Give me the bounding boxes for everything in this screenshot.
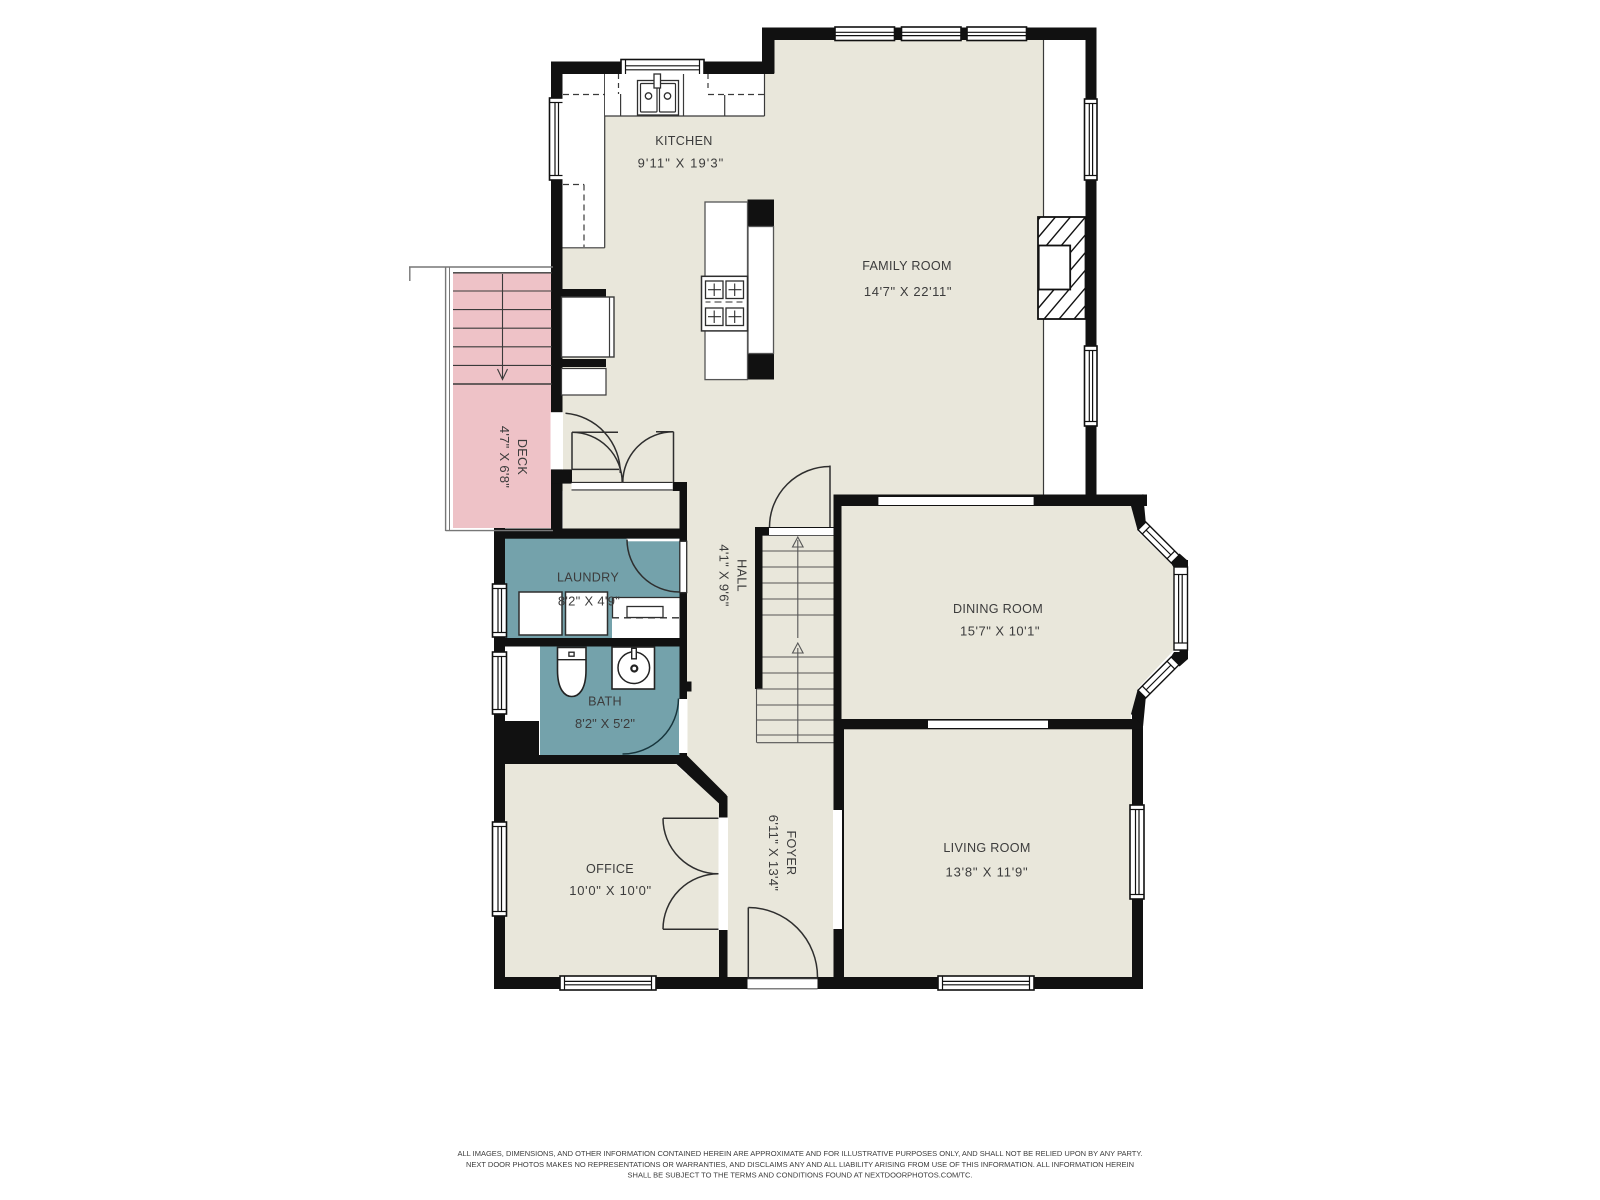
svg-text:ALL IMAGES, DIMENSIONS, AND OT: ALL IMAGES, DIMENSIONS, AND OTHER INFORM…: [457, 1149, 1142, 1158]
svg-text:9'11" X 19'3": 9'11" X 19'3": [638, 156, 725, 171]
svg-text:BATH: BATH: [588, 695, 622, 709]
svg-text:15'7" X 10'1": 15'7" X 10'1": [960, 624, 1040, 639]
svg-text:FOYER: FOYER: [784, 831, 798, 876]
svg-text:KITCHEN: KITCHEN: [655, 134, 712, 148]
svg-text:13'8" X 11'9": 13'8" X 11'9": [946, 865, 1029, 880]
svg-text:NEXT DOOR PHOTOS MAKES NO REPR: NEXT DOOR PHOTOS MAKES NO REPRESENTATION…: [466, 1160, 1134, 1169]
svg-text:HALL: HALL: [735, 559, 749, 592]
svg-text:14'7" X 22'11": 14'7" X 22'11": [864, 284, 952, 299]
svg-text:OFFICE: OFFICE: [586, 862, 634, 876]
svg-text:8'2" X 4'9": 8'2" X 4'9": [558, 594, 620, 609]
svg-text:LIVING ROOM: LIVING ROOM: [943, 841, 1030, 855]
svg-text:DINING ROOM: DINING ROOM: [953, 602, 1043, 616]
svg-text:8'2" X 5'2": 8'2" X 5'2": [575, 716, 635, 731]
svg-text:4'7" X 6'8": 4'7" X 6'8": [497, 426, 512, 488]
svg-text:10'0" X 10'0": 10'0" X 10'0": [569, 883, 652, 898]
svg-text:LAUNDRY: LAUNDRY: [557, 571, 619, 585]
svg-text:4'1" X 9'6": 4'1" X 9'6": [717, 544, 732, 606]
svg-text:FAMILY ROOM: FAMILY ROOM: [862, 259, 952, 273]
svg-text:SHALL BE SUBJECT TO THE TERMS: SHALL BE SUBJECT TO THE TERMS AND CONDIT…: [628, 1171, 973, 1180]
svg-text:DECK: DECK: [515, 439, 529, 475]
svg-text:6'11" X 13'4": 6'11" X 13'4": [766, 815, 781, 891]
